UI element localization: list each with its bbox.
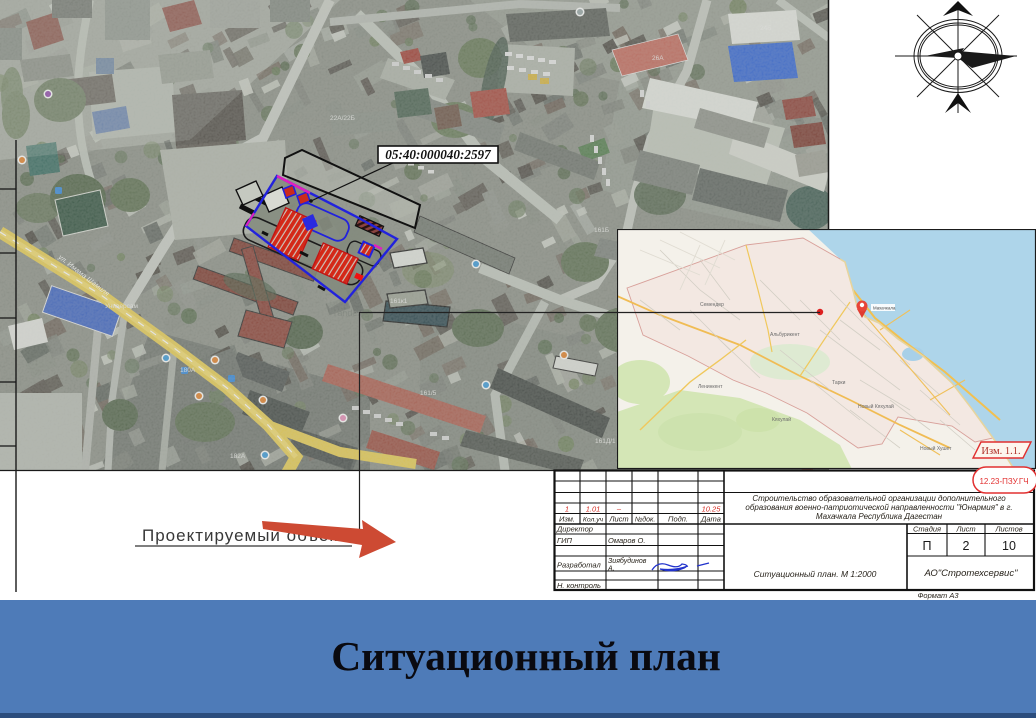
svg-text:Новый Хушет: Новый Хушет [920,445,952,452]
svg-text:Строительство образовательной: Строительство образовательной организаци… [752,494,1006,503]
svg-text:Семендер: Семендер [700,302,724,308]
svg-text:образования военно-патриотичес: образования военно-патриотической направ… [745,503,1012,512]
svg-text:Зиябудинов: Зиябудинов [608,557,647,565]
svg-text:Ситуационный план. М 1:2000: Ситуационный план. М 1:2000 [754,569,877,579]
svg-text:Махачкала Республика Дагестан: Махачкала Республика Дагестан [816,512,943,521]
svg-text:Листов: Листов [994,525,1022,534]
svg-text:10: 10 [1002,539,1016,553]
svg-text:12.23-ПЗУ.ГЧ: 12.23-ПЗУ.ГЧ [979,477,1028,486]
svg-text:Ленинкент: Ленинкент [698,384,723,390]
svg-text:Н. контроль: Н. контроль [557,581,601,590]
svg-text:1.01: 1.01 [586,505,601,514]
svg-text:Тарки: Тарки [832,380,846,386]
svg-text:Махачкала: Махачкала [873,306,896,311]
svg-text:Подп.: Подп. [668,515,688,524]
svg-text:Разработал: Разработал [557,561,601,570]
svg-text:2: 2 [963,539,970,553]
svg-text:№док.: №док. [635,516,656,524]
svg-text:05:40:000040:2597: 05:40:000040:2597 [385,147,492,162]
svg-text:Изм. 1.1.: Изм. 1.1. [981,446,1020,457]
svg-text:Лист: Лист [608,515,628,524]
svg-text:Лист: Лист [955,525,975,534]
svg-text:Формат А3: Формат А3 [917,591,959,600]
svg-text:Ситуационный план: Ситуационный план [331,633,721,679]
svg-text:1: 1 [565,505,569,514]
svg-text:Изм.: Изм. [559,515,575,524]
svg-text:А.: А. [607,566,615,573]
svg-text:Альбурикент: Альбурикент [770,332,800,338]
svg-text:10.25: 10.25 [702,505,722,514]
svg-text:П: П [923,539,932,553]
svg-text:Кяхулай: Кяхулай [772,416,791,423]
svg-text:Стадия: Стадия [913,525,941,534]
svg-text:АО"Стротехсервис": АО"Стротехсервис" [924,568,1019,579]
svg-text:Дата: Дата [700,515,721,524]
svg-text:ГИП: ГИП [557,536,572,545]
svg-text:Омаров О.: Омаров О. [608,536,645,545]
svg-text:Кол.уч: Кол.уч [583,517,604,524]
svg-text:–: – [616,505,622,514]
svg-text:Директор: Директор [556,525,593,534]
svg-text:Новый Кяхулай: Новый Кяхулай [858,403,894,410]
